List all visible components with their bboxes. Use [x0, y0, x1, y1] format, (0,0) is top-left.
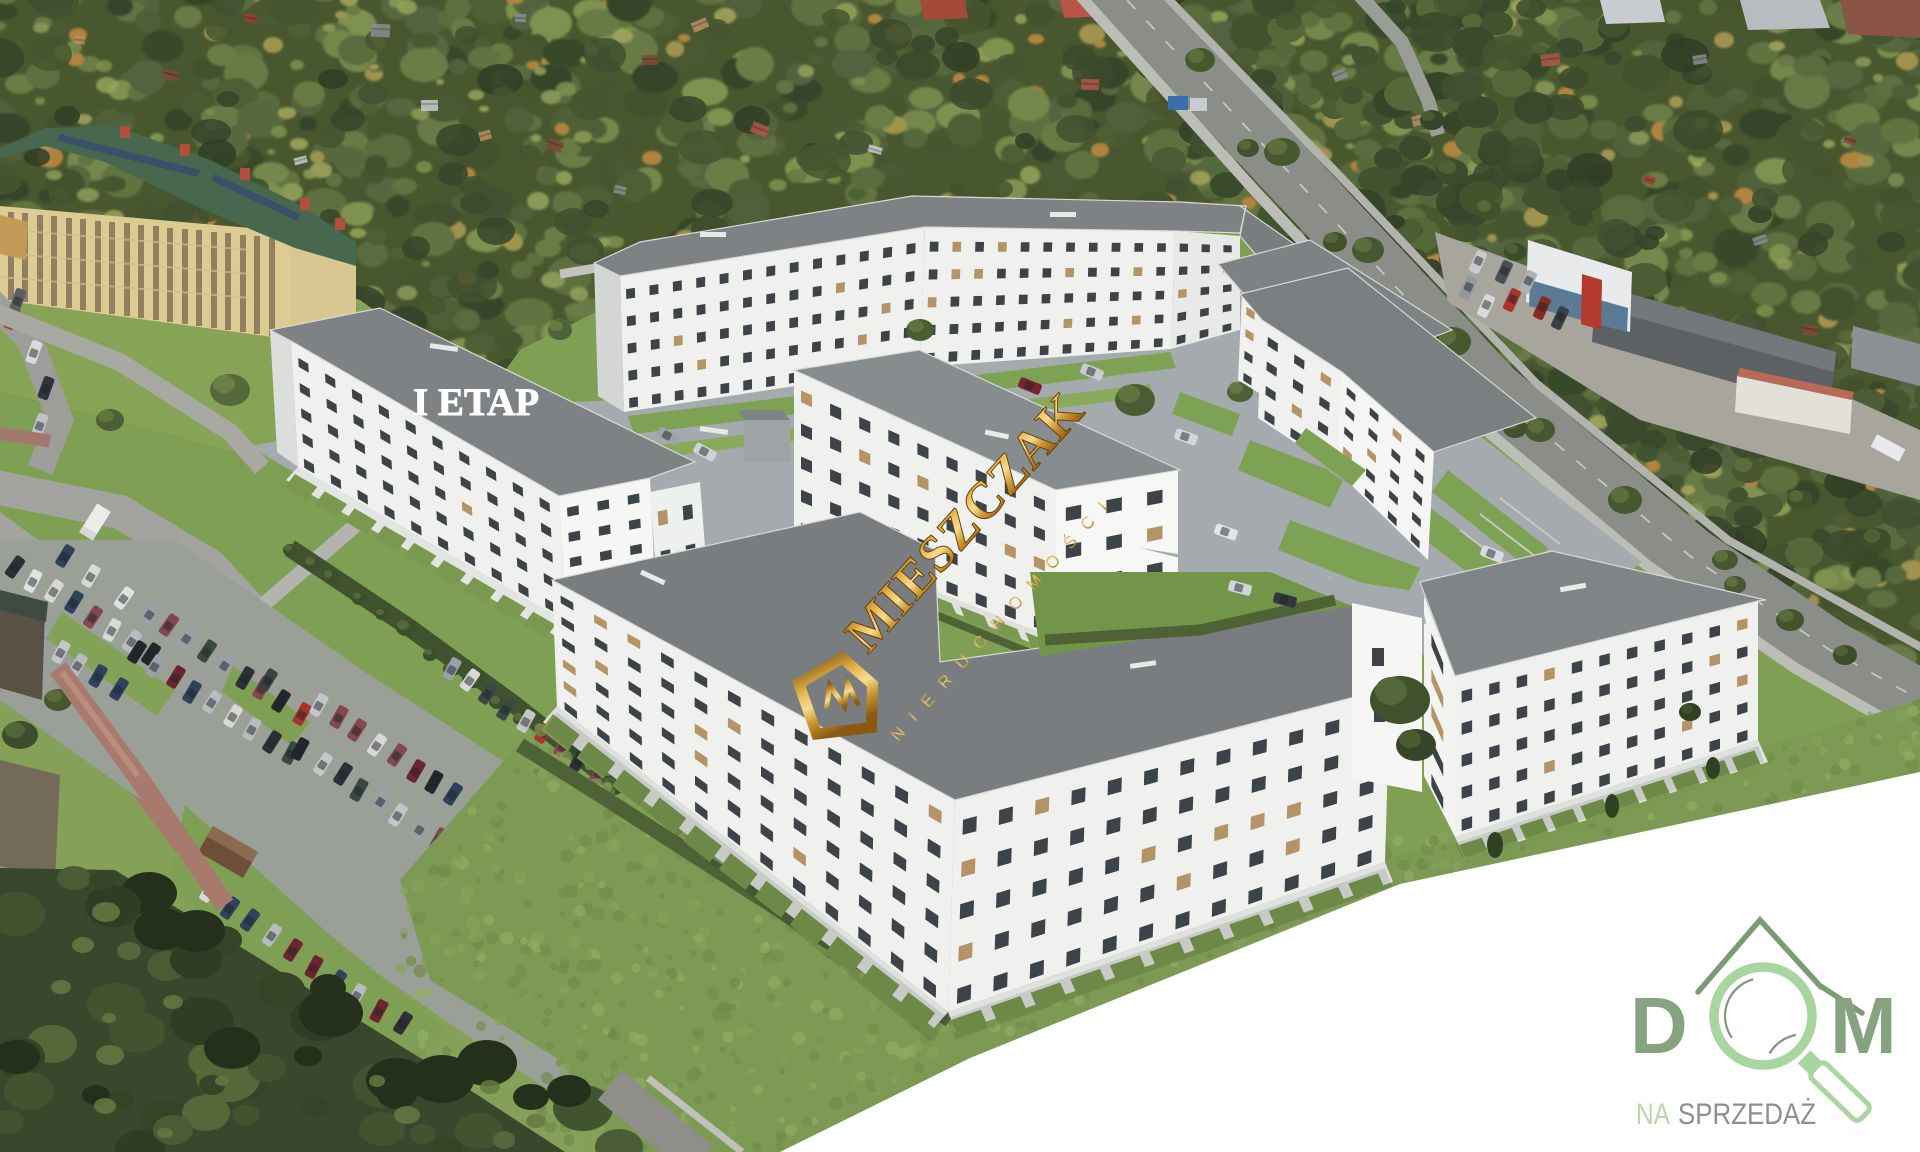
svg-text:I ETAP: I ETAP [413, 381, 539, 424]
svg-text:M: M [1830, 981, 1897, 1070]
svg-text:NA: NA [1636, 1098, 1670, 1131]
svg-text:D: D [1630, 981, 1688, 1070]
svg-text:SPRZEDAŻ: SPRZEDAŻ [1678, 1098, 1816, 1131]
